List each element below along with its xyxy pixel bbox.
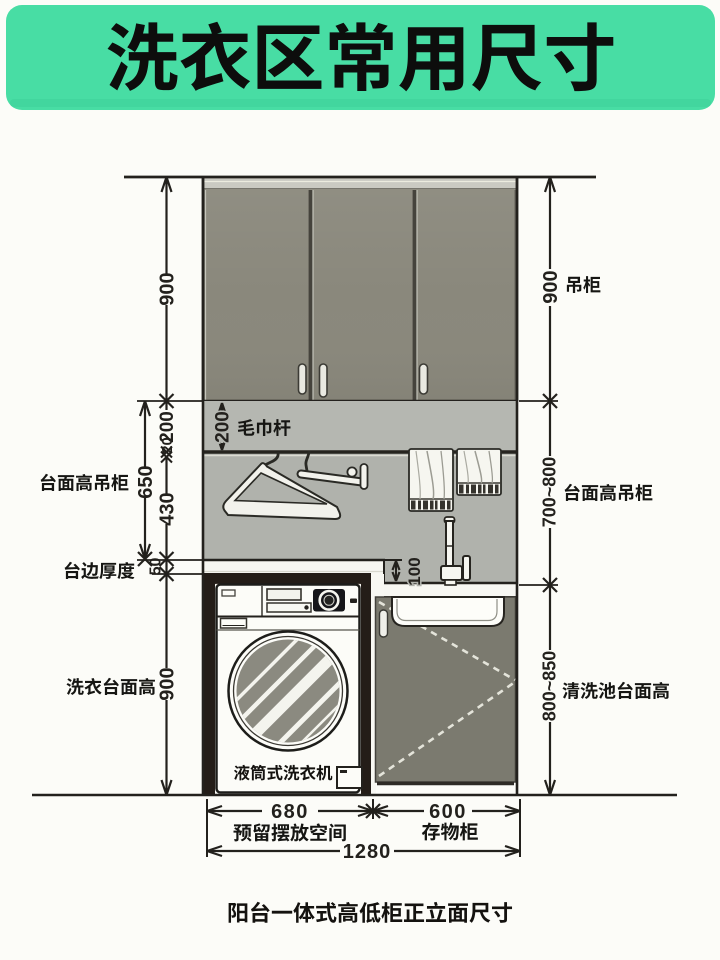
svg-text:430: 430 <box>157 492 179 525</box>
svg-text:600: 600 <box>429 801 467 823</box>
svg-text:900: 900 <box>540 270 562 303</box>
svg-text:650: 650 <box>135 465 157 498</box>
svg-text:700~800: 700~800 <box>539 457 559 528</box>
svg-text:100: 100 <box>405 557 424 585</box>
svg-text:800~850: 800~850 <box>539 651 559 722</box>
svg-text:20: 20 <box>159 437 176 454</box>
svg-text:900: 900 <box>157 272 179 305</box>
svg-text:200: 200 <box>213 411 234 443</box>
svg-text:900: 900 <box>157 667 179 700</box>
svg-text:1280: 1280 <box>343 841 392 863</box>
svg-text:680: 680 <box>271 801 309 823</box>
